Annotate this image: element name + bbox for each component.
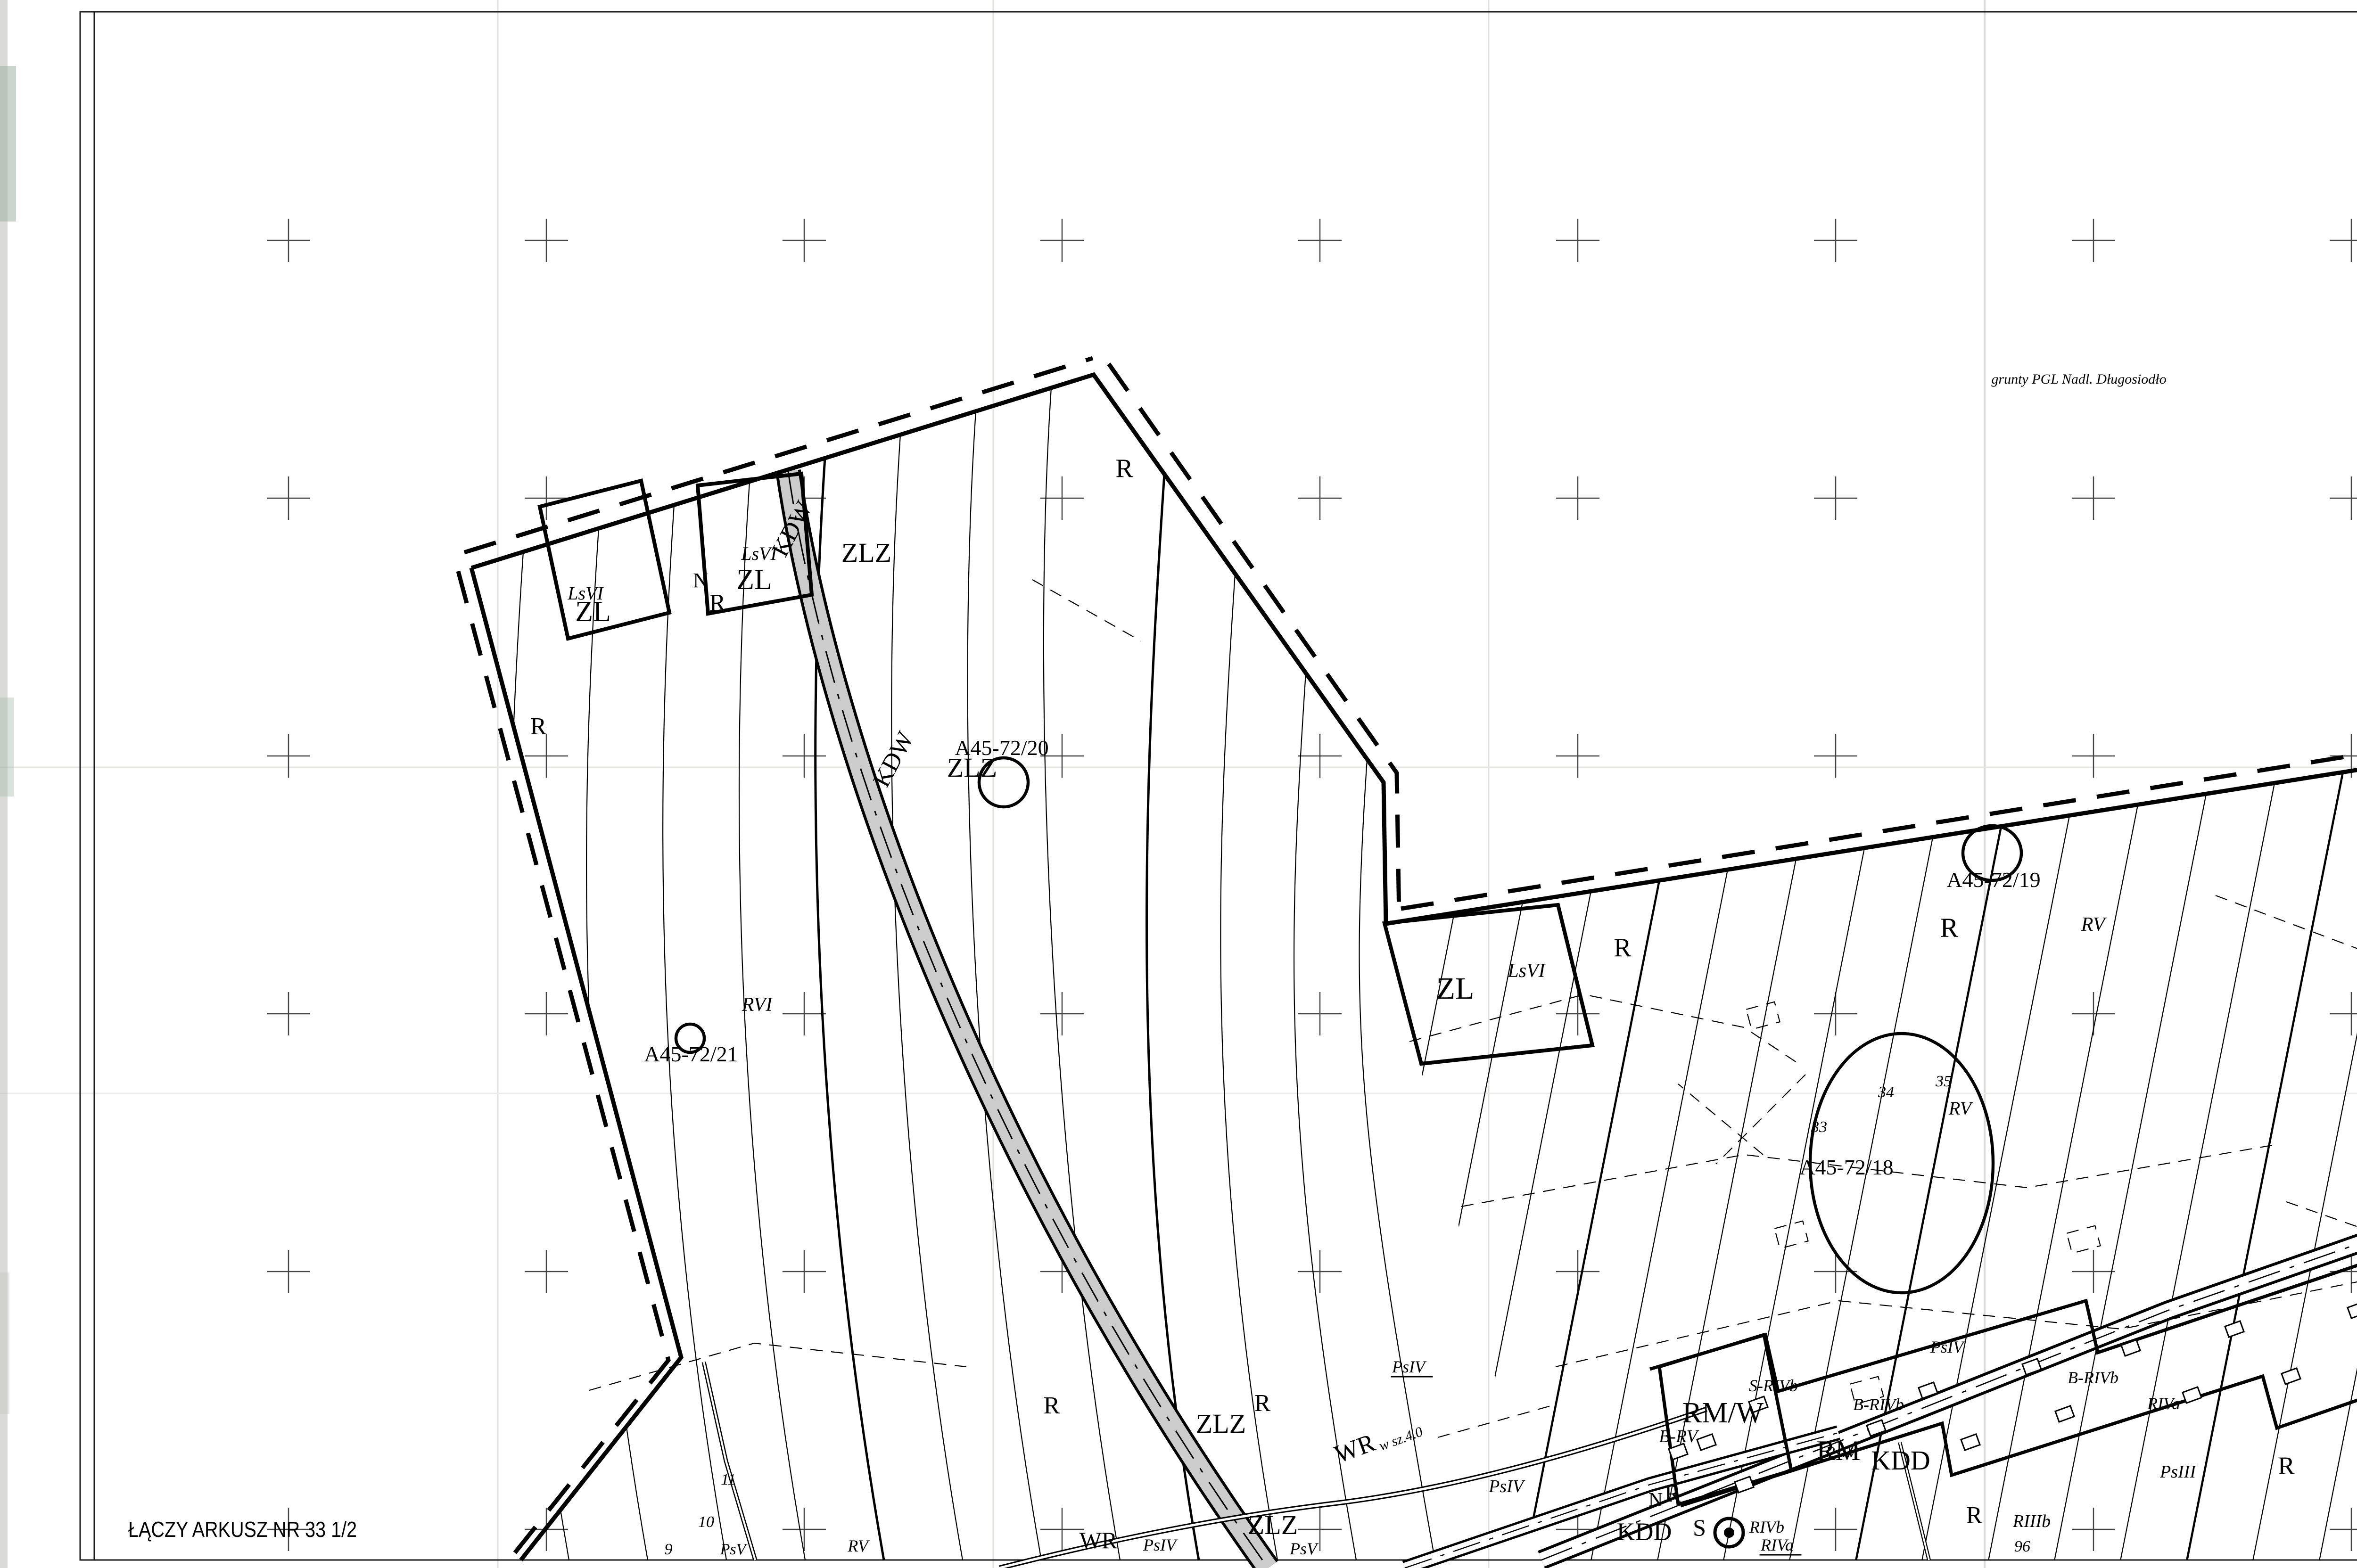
fold-lines <box>0 0 2357 1568</box>
zone-label: R <box>1115 454 1133 483</box>
soil-class-label: RIVb <box>1749 1518 1784 1536</box>
ring-label: A45-72/21 <box>644 1042 738 1066</box>
building-footprint <box>2055 1406 2074 1422</box>
soil-class-label: S-RIVb <box>1749 1376 1798 1395</box>
zone-label: R <box>530 713 547 740</box>
parcel-number: 34 <box>1878 1084 1894 1101</box>
parcel-number: 33 <box>1811 1118 1827 1136</box>
soil-class-label: PsV <box>720 1541 748 1558</box>
soil-class-label: PsIV <box>1392 1357 1427 1376</box>
soil-class-label: RIVa <box>2147 1394 2180 1413</box>
left-parcel-block <box>510 388 1436 1568</box>
buildings <box>1669 911 2357 1493</box>
zone-label: R <box>709 590 726 616</box>
soil-class-label: PsV <box>1289 1539 1319 1558</box>
zone-label: ZL <box>1436 971 1475 1006</box>
building-footprint <box>1961 1434 1980 1450</box>
zone-label: R <box>1665 1480 1681 1507</box>
building-footprint <box>2348 1302 2357 1318</box>
soil-class-label: PsIV <box>1930 1338 1965 1356</box>
soil-class-label: PsIV <box>1825 1444 1858 1461</box>
zone-label: S <box>1693 1514 1706 1541</box>
zone-label: ZLZ <box>947 752 997 783</box>
parcel-number: 11 <box>721 1471 735 1488</box>
soil-class-label: LsVI <box>1507 960 1546 982</box>
soil-class-label: RIVa <box>1760 1535 1794 1554</box>
zone-label: R <box>1966 1502 1983 1529</box>
soil-class-label: LsVI <box>741 543 777 564</box>
parcel-number: 9 <box>665 1541 673 1558</box>
zone-label: RM/W <box>1682 1397 1764 1429</box>
soil-class-label: B-RIVb <box>1853 1395 1904 1414</box>
zone-label: R <box>1940 912 1959 943</box>
ring-label: A45-72/19 <box>1946 868 2040 892</box>
ring-label: A45-72/18 <box>1799 1155 1893 1179</box>
soil-class-label: B-RV <box>1659 1427 1699 1446</box>
parcel-number: 10 <box>698 1513 714 1531</box>
zoning-map-canvas: A45-72/20A45-72/21A45-72/19A45-72/18 ZLZ… <box>0 0 2357 1568</box>
zone-label: ZL <box>736 564 772 596</box>
soil-class-label: RV <box>1948 1098 1974 1119</box>
soil-class-label: RV <box>2081 914 2107 936</box>
zone-label: R <box>1044 1392 1060 1419</box>
parcel-number: 35 <box>1935 1073 1952 1090</box>
zone-label: R <box>1614 933 1632 962</box>
soil-class-label: B-RIVb <box>2068 1368 2118 1387</box>
zone-label: WR <box>1331 1428 1379 1469</box>
soil-class-label: PsIII <box>2159 1462 2197 1482</box>
building-footprint <box>2225 1321 2244 1337</box>
zone-label: ZLZ <box>841 537 891 568</box>
zone-label: N <box>1648 1489 1663 1511</box>
soil-class-label: w sz.4.0 <box>1377 1424 1425 1454</box>
wr-streams <box>704 1357 2357 1568</box>
zone-label: WR <box>1080 1527 1118 1553</box>
forest-ownership-note: grunty PGL Nadl. Długosiodło <box>1970 371 2187 387</box>
scan-edge-artifacts <box>0 0 16 1568</box>
building-footprint <box>1697 1434 1716 1450</box>
zone-label: KDW <box>868 727 919 791</box>
soil-class-label: RIIIb <box>2012 1511 2051 1531</box>
soil-class-label: LsVI <box>567 583 604 604</box>
zone-label: KDD <box>1871 1445 1930 1476</box>
soil-class-label: RVI <box>742 994 774 1016</box>
adjoining-sheet-note: ŁĄCZY ARKUSZ NR 33 1/2 <box>128 1517 357 1542</box>
zone-label: N <box>693 569 708 592</box>
zone-label: KDD <box>1617 1518 1672 1546</box>
sheet-border <box>80 12 2357 1560</box>
zone-label: ZLZ <box>1248 1510 1298 1540</box>
building-footprint <box>2282 1368 2300 1384</box>
zone-label: R <box>1254 1390 1271 1417</box>
soil-class-label: RV <box>847 1536 870 1555</box>
zone-label: R <box>2278 1452 2295 1480</box>
zone-label: ZLZ <box>1196 1408 1246 1439</box>
parcel-number: 96 <box>2014 1538 2030 1555</box>
building-footprint <box>2183 1387 2201 1403</box>
well-symbol <box>1715 1519 1743 1547</box>
soil-class-label: PsIV <box>1143 1535 1178 1554</box>
soil-class-label: PsIV <box>1488 1477 1525 1496</box>
scanned-plan-sheet: A45-72/20A45-72/21A45-72/19A45-72/18 ZLZ… <box>0 0 2357 1568</box>
